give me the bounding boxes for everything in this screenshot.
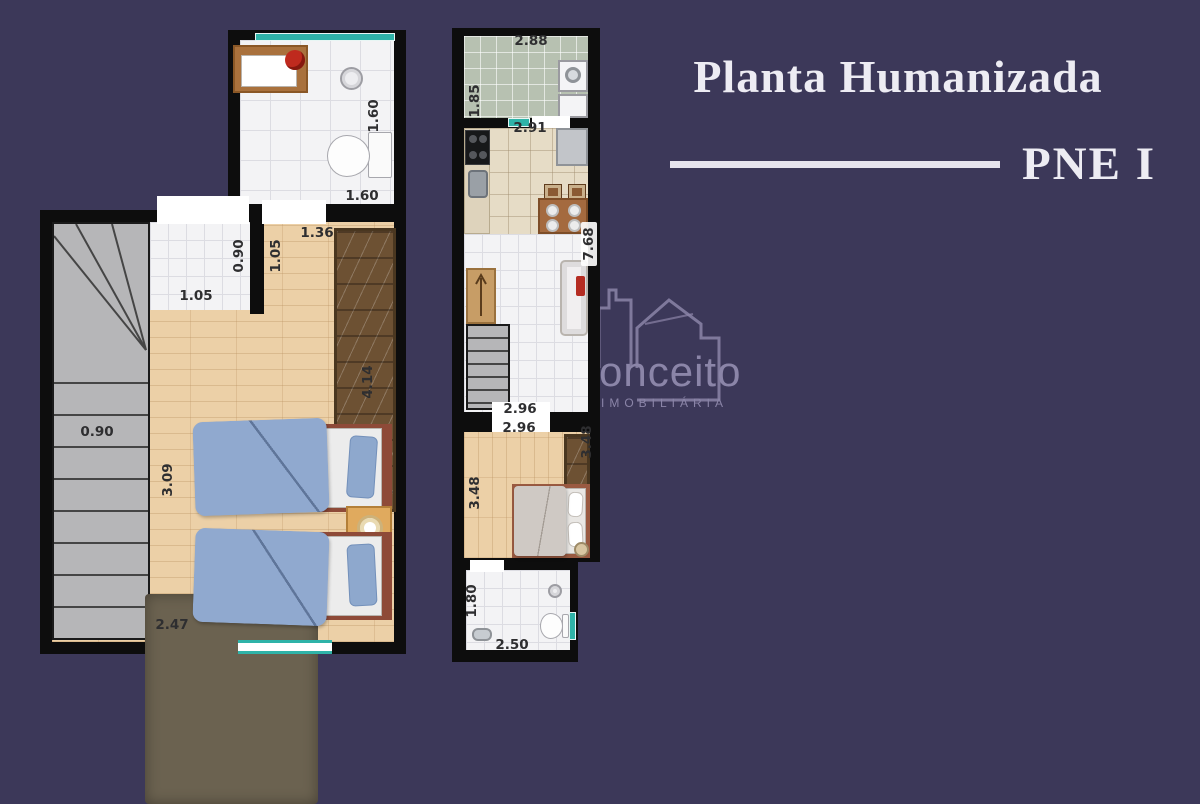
planta-humanizada-page: { "colors": { "background": "#3c3859", "… — [0, 0, 1200, 675]
corner-stool-icon — [574, 542, 589, 557]
lower-floor-plan: 2.88 1.85 2.91 7.68 2.96 2.96 3.48 3.48 … — [452, 28, 600, 662]
washing-machine — [558, 60, 588, 92]
entry-corridor-gap — [157, 196, 249, 224]
red-cushion-icon — [576, 276, 585, 296]
dim-bath-depth: 1.80 — [464, 579, 480, 623]
bed-pillow — [346, 543, 377, 606]
sofa — [560, 260, 588, 336]
plate-icon — [568, 204, 581, 217]
bathroom-door-gap — [262, 200, 326, 224]
page-subtitle: PNE I — [1022, 137, 1156, 191]
dim-entry-width: 1.05 — [174, 288, 218, 304]
plate-icon — [568, 219, 581, 232]
laundry-tank — [558, 94, 588, 118]
up-arrow-icon — [468, 270, 494, 322]
lower-bath-door-gap — [470, 560, 504, 572]
dim-unit-length: 7.68 — [581, 222, 597, 266]
shower-drain-icon — [548, 584, 562, 598]
dim-living-width: 2.96 — [498, 401, 542, 417]
single-bed-1 — [196, 424, 392, 512]
red-plant-icon — [285, 50, 305, 70]
stair-landing-panel — [466, 268, 496, 324]
plate-icon — [546, 204, 559, 217]
dim-room-length: 4.14 — [360, 360, 376, 404]
winder-stairs-icon — [54, 224, 148, 354]
dim-service-width: 2.88 — [509, 33, 553, 49]
dim-bedroom-depth-right: 3.48 — [579, 420, 595, 464]
bed-pillow — [567, 492, 583, 518]
partition-wall — [250, 210, 264, 314]
dim-room-width: 2.47 — [150, 617, 194, 633]
title-divider-line — [670, 161, 1000, 168]
watermark-brand-text: onceito — [599, 348, 741, 396]
toilet-tank — [562, 614, 569, 638]
burner-icon — [469, 135, 477, 143]
bed-blanket — [192, 418, 329, 517]
bed-pillow — [346, 435, 378, 499]
dim-bedroom-depth-left: 3.48 — [467, 471, 483, 515]
burner-icon — [479, 151, 487, 159]
single-bed-2 — [196, 532, 392, 620]
upper-bathroom-window — [255, 33, 395, 41]
upper-floor-plan: 1.60 1.60 0.90 1.05 1.36 1.05 4.14 0.90 … — [40, 28, 406, 654]
watermark-tagline-text: IMOBILIÁRIA — [601, 396, 728, 410]
dim-bedroom-width: 2.96 — [497, 420, 541, 436]
plate-icon — [546, 219, 559, 232]
burner-icon — [469, 151, 477, 159]
title-block: Planta Humanizada PNE I — [640, 50, 1156, 191]
shower-drain-icon — [340, 67, 363, 90]
washer-door-icon — [565, 67, 581, 83]
kitchen-sink — [468, 170, 488, 198]
dim-bath-width: 2.50 — [490, 637, 534, 653]
burner-icon — [479, 135, 487, 143]
dim-service-depth: 1.85 — [467, 79, 483, 123]
title-subrow: PNE I — [640, 137, 1156, 191]
cooktop — [465, 130, 490, 165]
page-title: Planta Humanizada — [640, 50, 1156, 103]
dim-passage-width: 1.05 — [268, 234, 284, 278]
dim-stair-width: 0.90 — [75, 424, 119, 440]
dim-bath-depth: 1.60 — [366, 94, 382, 138]
dim-entry-depth: 0.90 — [231, 234, 247, 278]
watermark-logo: onceito IMOBILIÁRIA — [597, 272, 897, 404]
plan-notch — [578, 562, 600, 662]
dim-closet-wall: 1.36 — [295, 225, 339, 241]
refrigerator — [556, 128, 588, 166]
bed-blanket — [192, 528, 329, 627]
bath-window — [569, 612, 576, 640]
dim-bath-width: 1.60 — [340, 188, 384, 204]
bath-sink — [472, 628, 492, 641]
toilet-tank — [368, 132, 392, 178]
bedroom-window — [238, 640, 332, 654]
stairs-treads — [468, 326, 508, 410]
dim-room-depth: 3.09 — [160, 458, 176, 502]
bed-blanket — [514, 486, 566, 556]
lower-staircase — [466, 324, 510, 410]
straight-stairs-treads — [54, 352, 148, 638]
dim-kitchen-width: 2.91 — [508, 120, 552, 136]
